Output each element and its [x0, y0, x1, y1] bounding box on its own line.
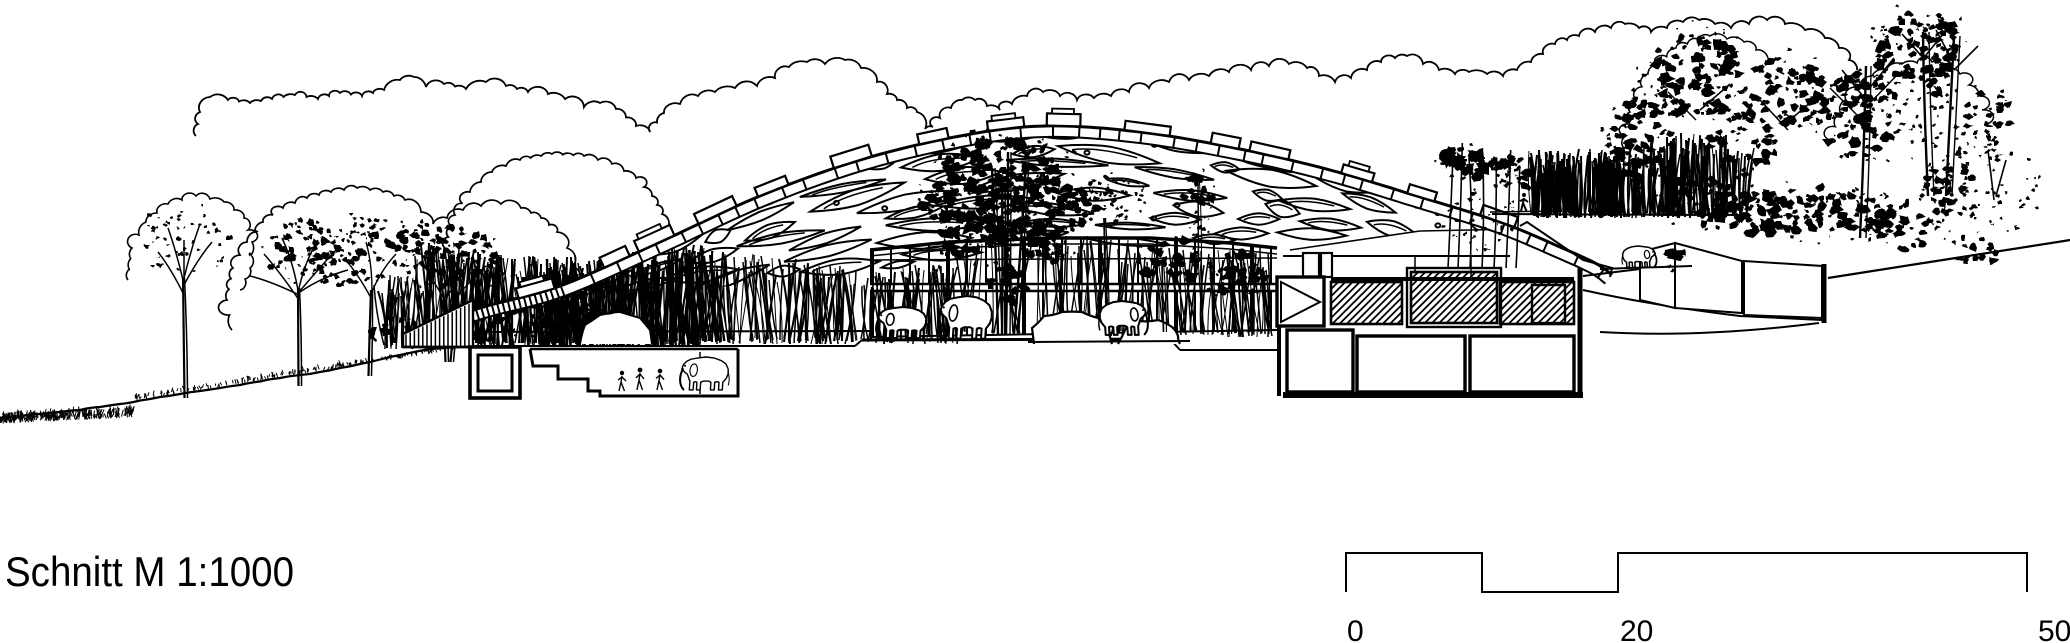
svg-text:0: 0	[1347, 615, 1364, 643]
svg-text:50: 50	[2038, 615, 2070, 643]
svg-text:Schnitt M 1:1000: Schnitt M 1:1000	[5, 548, 294, 595]
svg-text:20: 20	[1620, 615, 1653, 643]
